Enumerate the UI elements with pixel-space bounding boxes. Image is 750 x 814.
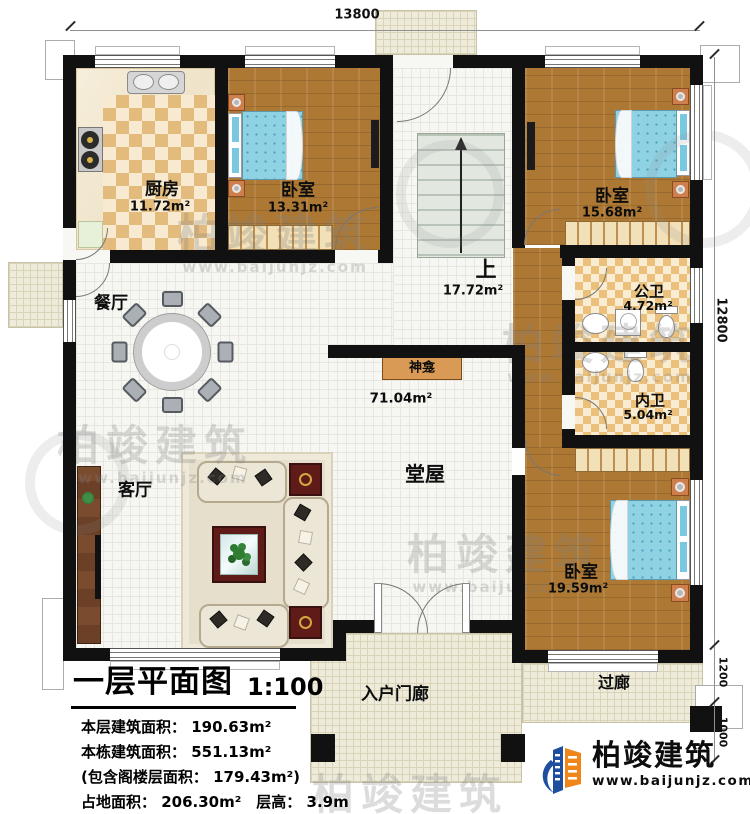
room-label-corridor: 过廊 (598, 675, 630, 691)
window (548, 650, 658, 663)
wall (562, 435, 703, 448)
wall (560, 245, 703, 258)
window-sill (703, 85, 712, 180)
bedroom1-tv (371, 120, 379, 168)
title-block: 一层平面图 1:100 本层建筑面积： 190.63m² 本栋建筑面积： 551… (63, 656, 358, 814)
wall (380, 68, 393, 263)
room-label-dining: 餐厅 (94, 296, 128, 313)
plan-title: 一层平面图 (73, 656, 233, 701)
window (690, 268, 703, 323)
dining-table-center (164, 344, 180, 360)
living-tv (95, 535, 101, 599)
left-terrace (8, 262, 63, 328)
nightstand-lamp (676, 92, 685, 101)
corridor-passage-floor (522, 663, 703, 723)
bathroom-sink (582, 313, 609, 334)
stairs-area: 17.72m² (443, 285, 503, 298)
door-opening (562, 266, 575, 300)
side-table-medallion (299, 616, 312, 629)
window-sill (545, 46, 640, 55)
area-line-4: 占地面积： 206.30m² 层高： 3.9m (81, 790, 358, 814)
dimension-line-right (714, 57, 715, 646)
bathroom-sink (582, 352, 609, 373)
nightstand-lamp (675, 588, 685, 598)
door-opening (335, 250, 378, 263)
side-table-medallion (299, 473, 312, 486)
dining-chair (112, 342, 128, 363)
shrine-label: 神龛 (409, 362, 435, 375)
dimension-right: 12800 (714, 297, 729, 342)
entry-door-leaf (462, 583, 470, 633)
window-sill (245, 46, 335, 55)
dimension-top: 13800 (334, 8, 379, 23)
porch-pillar (501, 734, 525, 762)
area-line-2: 本栋建筑面积： 551.13m² (81, 740, 358, 765)
room-label-living: 客厅 (118, 483, 152, 500)
title-underline (71, 706, 296, 709)
brand-text: 柏竣建筑 www.baijunjz.com (592, 738, 750, 789)
bedroom1-wardrobe (228, 225, 333, 250)
stairs-up-label: 上 (476, 260, 497, 281)
room-label-porch: 入户门廊 (361, 687, 429, 704)
brand-url: www.baijunjz.com (592, 773, 750, 789)
area-info: 本层建筑面积： 190.63m² 本栋建筑面积： 551.13m² (包含阁楼层… (63, 715, 358, 814)
wall (512, 345, 525, 448)
room-area-public-bath: 4.72m² (623, 300, 672, 313)
wall (328, 345, 525, 358)
watermark-ring (25, 430, 130, 535)
brand-name: 柏竣建筑 (592, 738, 750, 773)
area-line-1: 本层建筑面积： 190.63m² (81, 715, 358, 740)
room-label-bedroom3: 卧室 (564, 565, 598, 582)
room-area-private-bath: 5.04m² (623, 409, 672, 422)
pillow (679, 505, 688, 537)
bedroom2-tv (527, 122, 535, 170)
room-area-bedroom3: 19.59m² (548, 583, 608, 596)
hall-area: 71.04m² (370, 392, 433, 406)
top-terrace (375, 10, 477, 55)
dining-chair (162, 397, 183, 413)
window-sill (95, 46, 180, 55)
wall (512, 68, 525, 248)
burner-flame (87, 137, 93, 143)
pillow (231, 147, 240, 174)
entry-door-leaf (374, 583, 382, 633)
kitchen-checker-floor (103, 95, 215, 250)
wall (575, 342, 690, 352)
room-label-hall: 堂屋 (405, 464, 445, 484)
dimension-line-top (70, 30, 700, 31)
bed-sheet-fold (615, 110, 632, 178)
door-opening (63, 228, 76, 260)
brand-logo-icon (538, 738, 586, 798)
toilet-bowl (627, 359, 644, 382)
wall (215, 68, 228, 250)
area-line-3: (包含阁楼层面积： 179.43m²) (81, 765, 358, 790)
watermark-ring (396, 140, 504, 248)
window-sill (548, 663, 658, 672)
sofa-cushion (298, 530, 313, 545)
dimension-line-porch (714, 646, 715, 704)
window (690, 85, 703, 180)
wall (465, 620, 525, 633)
window (63, 300, 76, 342)
sink-basin (133, 74, 154, 90)
room-area-bedroom1: 13.31m² (268, 202, 328, 215)
dining-chair (218, 342, 234, 363)
pillow (231, 116, 240, 143)
door-opening (562, 395, 575, 429)
floor-plan: 柏竣建筑www.baijunjz.com 柏竣建筑www.baijunjz.co… (0, 0, 750, 814)
window (545, 55, 640, 68)
room-label-bedroom2: 卧室 (595, 189, 629, 206)
door-opening (393, 55, 453, 68)
burner-flame (87, 157, 93, 163)
nightstand-lamp (232, 98, 241, 107)
side-steps (42, 598, 64, 690)
room-label-kitchen: 厨房 (145, 182, 179, 199)
table-plant (233, 548, 245, 560)
window (245, 55, 335, 68)
pillow (679, 541, 688, 573)
bedroom3-wardrobe (575, 448, 690, 472)
bed-sheet-fold (286, 111, 303, 180)
bed-sheet-fold (610, 500, 628, 580)
nightstand-lamp (232, 184, 241, 193)
corner-column-outline (700, 45, 740, 83)
brand-logo: 柏竣建筑 www.baijunjz.com (538, 738, 750, 798)
dining-chair (162, 291, 183, 307)
washer-drum (620, 313, 637, 330)
wall (63, 55, 76, 661)
room-label-bedroom1: 卧室 (281, 183, 315, 200)
title-row: 一层平面图 1:100 (63, 656, 358, 701)
nightstand-lamp (675, 482, 685, 492)
room-area-kitchen: 11.72m² (130, 201, 190, 214)
dimension-porch: 1200 (717, 657, 730, 688)
plan-scale: 1:100 (247, 673, 323, 701)
window (95, 55, 180, 68)
sink-basin (158, 74, 179, 90)
room-area-bedroom2: 15.68m² (582, 207, 642, 220)
toilet-bowl (658, 315, 675, 338)
window (690, 480, 703, 585)
wall (512, 475, 525, 663)
